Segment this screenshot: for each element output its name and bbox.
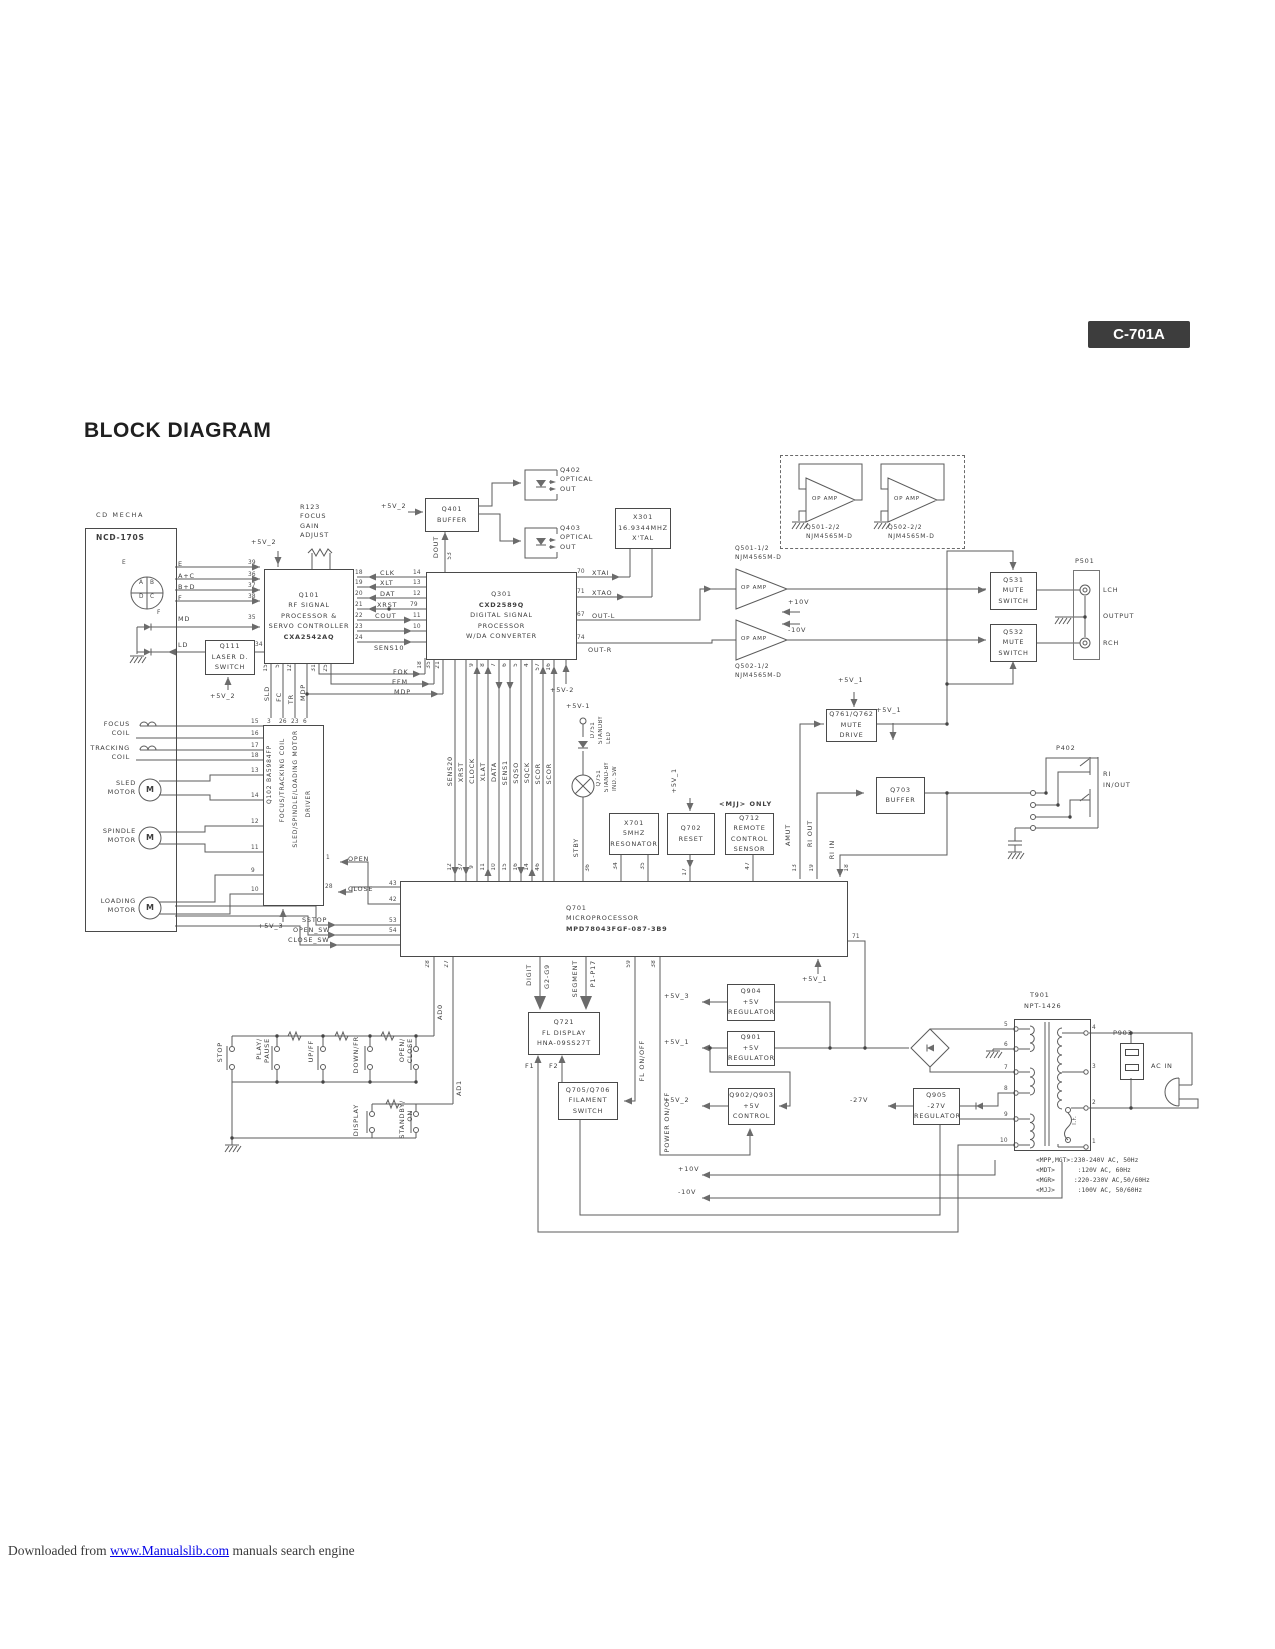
q901-out: +5V_1: [664, 1038, 689, 1046]
sig-sld: SLD: [263, 686, 271, 701]
pd-quadrant-c: C: [150, 594, 154, 600]
q905-out: -27V: [850, 1096, 868, 1104]
pd-quadrant-b: B: [150, 580, 154, 586]
q101-bpin5: 5: [275, 664, 281, 668]
ac-in-label: AC IN: [1151, 1062, 1173, 1070]
q301-pin53: 53: [447, 552, 453, 560]
button-play2: PAUSE: [263, 1038, 271, 1063]
q101-supply: +5V_2: [251, 538, 276, 546]
q301-bpin35: 35: [426, 661, 432, 669]
pin-34: 34: [255, 642, 263, 648]
t901-box: [1014, 1019, 1091, 1151]
sig-ac: A+C: [178, 572, 195, 580]
q301-bpin5: 5: [513, 663, 519, 667]
t901-pin1: 1: [1092, 1139, 1096, 1145]
q101-pin22: 22: [355, 613, 363, 619]
q301-bpin16: 16: [546, 663, 552, 671]
sig-ad0: AD0: [436, 1004, 444, 1020]
q751-ref: Q751: [596, 770, 602, 786]
q101-bpin15: 15: [263, 664, 269, 672]
q701-tpin36: 36: [585, 864, 591, 872]
mjj-note: <MJJ> ONLY: [719, 800, 772, 808]
footer-link[interactable]: www.Manualslib.com: [110, 1543, 229, 1558]
block-q705: Q705/Q706FILAMENTSWITCH: [558, 1082, 618, 1120]
bus-data: DATA: [490, 762, 498, 782]
pd-quadrant-d: D: [139, 594, 144, 600]
q101-bpin25: 25: [323, 664, 329, 672]
q301-pin13: 13: [413, 580, 421, 586]
q701-lpin43: 43: [389, 881, 397, 887]
q102-lpin9: 9: [251, 868, 255, 874]
sig-open: OPEN: [348, 855, 369, 863]
sig-mdp: MDP: [299, 684, 307, 701]
q904-out: +5V_3: [664, 992, 689, 1000]
q102-pin28: 28: [325, 884, 333, 890]
sig-close: CLOSE: [348, 885, 373, 893]
button-open1: OPEN/: [398, 1038, 406, 1062]
q301-bpin4: 4: [524, 663, 530, 667]
sig-xrst: XRST: [377, 601, 397, 609]
q301-pin11: 11: [413, 613, 421, 619]
q101-pin21: 21: [355, 602, 363, 608]
block-q721: Q721FL DISPLAYHNA-09SS27T: [528, 1012, 600, 1055]
r123-label: R123FOCUSGAINADJUST: [300, 503, 329, 541]
button-standby1: STANDBY/: [398, 1100, 406, 1139]
pin-36: 36: [248, 572, 256, 578]
opamp-m10: -10V: [788, 626, 806, 634]
q101-pin23: 23: [355, 624, 363, 630]
q701-bpin28: 28: [425, 960, 431, 968]
q301-bpin7: 7: [491, 663, 497, 667]
q111-supply: +5V_2: [210, 692, 235, 700]
sig-flonoff: FL ON/OFF: [638, 1040, 646, 1081]
sig-opensw: OPEN_SW: [293, 926, 330, 934]
q703-supply: +5V_1: [876, 706, 901, 714]
focus-coil-label: FOCUSCOIL: [86, 720, 130, 739]
sig-xtao: XTAO: [592, 589, 612, 597]
p903-fuse1: [1125, 1049, 1139, 1056]
q102-pin23: 23: [291, 719, 299, 725]
sig-ld: LD: [178, 641, 188, 649]
q701-tpin17: 17: [682, 868, 688, 876]
sig-bd: B+D: [178, 583, 195, 591]
sig-riin: RI IN: [828, 840, 836, 859]
q701-lpin42: 42: [389, 897, 397, 903]
opamp4-label: OP AMP: [894, 496, 920, 502]
model-badge: C-701A: [1088, 321, 1190, 348]
q102-col2: FOCUS/TRACKING COIL: [279, 738, 286, 822]
t901-pin4: 4: [1092, 1025, 1096, 1031]
q301-pin10: 10: [413, 624, 421, 630]
bus-sens1: SENS1: [501, 760, 509, 785]
sig-fc: FC: [275, 692, 283, 702]
q102-col3: SLED/SPINDLE/LOADING MOTOR: [292, 730, 299, 848]
sled-motor-label: SLEDMOTOR: [96, 779, 136, 798]
q701-supply: +5V_1: [802, 975, 827, 983]
rail-m10: -10V: [678, 1188, 696, 1196]
q102-pin26: 26: [279, 719, 287, 725]
block-q712: Q712REMOTECONTROLSENSOR: [725, 813, 774, 855]
p501-lch: LCH: [1103, 586, 1118, 594]
sig-xlt: XLT: [380, 579, 394, 587]
q102-lpin13: 13: [251, 768, 259, 774]
q101-pin20: 20: [355, 591, 363, 597]
bus-xlat: XLAT: [479, 762, 487, 781]
q301-bpin6: 6: [502, 663, 508, 667]
block-q301: Q301CXD2589QDIGITAL SIGNALPROCESSORW/DA …: [426, 572, 577, 660]
pin-39: 39: [248, 560, 256, 566]
block-x701: X7015MHZRESONATOR: [609, 813, 659, 855]
sig-sens10: SENS10: [374, 644, 404, 652]
bus-sqso: SQSO: [512, 762, 520, 784]
q501-2-label: Q501-2/2NJM4565M-D: [806, 524, 853, 541]
block-q905: Q905-27VREGULATOR: [913, 1088, 960, 1125]
q403-label: Q403OPTICALOUT: [560, 524, 593, 552]
footer: Downloaded from www.Manualslib.com manua…: [8, 1543, 355, 1559]
q701-bpin27: 27: [444, 960, 450, 968]
pd-quadrant-a: A: [139, 580, 143, 586]
q102-lpin16: 16: [251, 731, 259, 737]
t901-pin5: 5: [1004, 1022, 1008, 1028]
sig-stby: STBY: [572, 838, 580, 857]
t901-pin10: 10: [1000, 1138, 1008, 1144]
sig-dout: DOUT: [432, 536, 440, 558]
sig-riout: RI OUT: [806, 820, 814, 847]
p402-label: P402: [1056, 744, 1076, 752]
q702-supply: +5V_1: [670, 768, 678, 793]
q301-pin67: 67: [577, 612, 585, 618]
spindle-motor-label: SPINDLEMOTOR: [86, 827, 136, 846]
q301-bpin57: 57: [535, 663, 541, 671]
t901-pin8: 8: [1004, 1086, 1008, 1092]
q301-bpin8: 8: [480, 663, 486, 667]
sig-mdp2: MDP: [394, 688, 411, 696]
d751-label2: LED: [606, 732, 612, 744]
rail-p10: +10V: [678, 1165, 699, 1173]
sig-xtai: XTAI: [592, 569, 609, 577]
t901-pin2: 2: [1092, 1100, 1096, 1106]
t901-pin9: 9: [1004, 1112, 1008, 1118]
q301-pin70: 70: [577, 569, 585, 575]
loading-motor-symbol: M: [146, 903, 155, 912]
button-downfr: DOWN/FR: [352, 1036, 360, 1073]
t901-pin6: 6: [1004, 1042, 1008, 1048]
opamp1-label: OP AMP: [741, 585, 767, 591]
q102-pin3: 3: [267, 719, 271, 725]
q102-supply: +5V_3: [258, 922, 283, 930]
q102-col4: DRIVER: [305, 790, 312, 817]
button-stop: STOP: [216, 1042, 224, 1062]
button-display: DISPLAY: [352, 1104, 360, 1136]
sig-f1: F1: [525, 1062, 534, 1070]
footer-prefix: Downloaded from: [8, 1543, 110, 1558]
p501-rch: RCH: [1103, 639, 1119, 647]
block-q111: Q111LASER D.SWITCH: [205, 640, 255, 675]
opamp3-label: OP AMP: [812, 496, 838, 502]
mecha-model: NCD-170S: [96, 533, 145, 542]
button-play1: PLAY/: [255, 1038, 263, 1060]
loading-motor-label: LOADINGMOTOR: [86, 897, 136, 916]
d751-label1: STANDBY: [598, 716, 604, 744]
mecha-heading: CD MECHA: [96, 511, 144, 519]
t901-name: T901: [1030, 991, 1050, 999]
sig-dat: DAT: [380, 590, 395, 598]
opamp-p10: +10V: [788, 598, 809, 606]
q701-tpin13: 13: [792, 864, 798, 872]
q102-lpin17: 17: [251, 743, 259, 749]
bus-sqck: SQCK: [523, 762, 531, 783]
q301-pin79: 79: [410, 602, 418, 608]
t901-pin7: 7: [1004, 1065, 1008, 1071]
sig-ad1: AD1: [455, 1080, 463, 1096]
footer-suffix: manuals search engine: [229, 1543, 355, 1558]
sig-md: MD: [178, 615, 190, 623]
q701-tpin16: 16: [513, 863, 519, 871]
q751-label1: STAND-BY: [604, 762, 610, 792]
pd-f-label: F: [157, 610, 161, 616]
block-q531: Q531MUTESWITCH: [990, 572, 1037, 610]
bus-scor1: SCOR: [534, 763, 542, 785]
q301-pin14: 14: [413, 570, 421, 576]
q701-tpin34: 34: [613, 862, 619, 870]
tracking-coil-label: TRACKINGCOIL: [78, 744, 130, 763]
q102-col1: Q102 BA5984FP: [266, 745, 273, 804]
t901-pin3: 3: [1092, 1064, 1096, 1070]
button-upff: UP/FF: [307, 1040, 315, 1062]
block-q532: Q532MUTESWITCH: [990, 624, 1037, 662]
bus-sens20: SENS20: [446, 756, 454, 786]
q701-tpin19: 19: [809, 864, 815, 872]
button-open2: CLOSE: [406, 1038, 414, 1063]
q502-1-label: Q502-1/2NJM4565M-D: [735, 663, 782, 680]
q761-supply: +5V_1: [838, 676, 863, 684]
q751-label2: IND. SW: [612, 766, 618, 791]
p903-fuse2: [1125, 1064, 1139, 1071]
q701-lpin53: 53: [389, 918, 397, 924]
bus-scor2: SCOR: [545, 763, 553, 785]
q301-bpin21: 21: [435, 661, 441, 669]
sig-digit: DIGIT: [525, 964, 533, 986]
q101-pin18: 18: [355, 570, 363, 576]
block-q902: Q902/Q903+5VCONTROL: [728, 1088, 775, 1125]
q701-bpin59: 59: [626, 960, 632, 968]
q701-tpin35: 35: [640, 862, 646, 870]
pin-37: 37: [248, 583, 256, 589]
opamp2-label: OP AMP: [741, 636, 767, 642]
block-x301: X30116.9344MHZX'TAL: [615, 508, 671, 549]
q301-bpin18: 18: [417, 661, 423, 669]
block-q761: Q761/Q762MUTEDRIVE: [826, 709, 877, 742]
q701-bpin38: 38: [651, 960, 657, 968]
q701-tpin12: 12: [447, 863, 453, 871]
q102-lpin11: 11: [251, 845, 259, 851]
p501-connector: [1073, 570, 1100, 660]
pd-e-label: E: [122, 560, 126, 566]
p903-label: P903: [1113, 1029, 1133, 1037]
q701-tpin37: 37: [458, 863, 464, 871]
q701-tpin9: 9: [469, 865, 475, 869]
q101-bpin12: 12: [287, 664, 293, 672]
button-standby2: ON: [406, 1110, 414, 1122]
sig-f2: F2: [549, 1062, 558, 1070]
bus-xrst: XRST: [457, 762, 465, 782]
q102-lpin14: 14: [251, 793, 259, 799]
t901-tf: T.F.: [1072, 1116, 1078, 1126]
q102-pin1: 1: [326, 855, 330, 861]
q301-pin12: 12: [413, 591, 421, 597]
sled-motor-symbol: M: [146, 785, 155, 794]
sig-clk: CLK: [380, 569, 395, 577]
sig-sstop: SSTOP: [302, 916, 327, 924]
q101-pin19: 19: [355, 580, 363, 586]
standby-supply: +5V-1: [566, 702, 590, 710]
q502-2-label: Q502-2/2NJM4565M-D: [888, 524, 935, 541]
t901-model: NPT-1426: [1024, 1002, 1061, 1010]
q301-pin71: 71: [577, 589, 585, 595]
q701-tpin18: 18: [844, 864, 850, 872]
sig-e: E: [178, 560, 183, 568]
q701-tpin47: 47: [745, 862, 751, 870]
block-q904: Q904+5VREGULATOR: [727, 984, 775, 1021]
q701-tpin11: 11: [480, 863, 486, 871]
p501-output: OUTPUT: [1103, 612, 1134, 620]
q301-pin74: 74: [577, 635, 585, 641]
p501-label: P501: [1075, 557, 1095, 565]
p402-inout: IN/OUT: [1103, 781, 1131, 789]
block-q401: Q401BUFFER: [425, 498, 479, 532]
q101-bpin31: 31: [311, 664, 317, 672]
sig-p1p17: P1-P17: [589, 960, 597, 987]
sig-outl: OUT-L: [592, 612, 615, 620]
q701-rpin71: 71: [852, 934, 860, 940]
q402-label: Q402OPTICALOUT: [560, 466, 593, 494]
q902-out: +5V_2: [664, 1096, 689, 1104]
q701-tpin14: 14: [524, 863, 530, 871]
q501-1-label: Q501-1/2NJM4565M-D: [735, 545, 782, 562]
sig-closesw: CLOSE_SW: [288, 936, 329, 944]
sig-tr: TR: [287, 694, 295, 704]
d751-ref: D751: [590, 722, 596, 738]
q102-lpin10: 10: [251, 887, 259, 893]
pin-38: 38: [248, 594, 256, 600]
q102-lpin12: 12: [251, 819, 259, 825]
q701-tpin46: 46: [535, 863, 541, 871]
sig-cout: COUT: [375, 612, 397, 620]
sig-f: F: [178, 594, 183, 602]
sig-g2g9: G2-G9: [543, 964, 551, 989]
p402-ri: RI: [1103, 770, 1111, 778]
q102-pin6: 6: [303, 719, 307, 725]
schematic-page: C-701A BLOCK DIAGRAM CD MECHA NCD-170S E…: [0, 0, 1275, 1649]
sig-outr: OUT-R: [588, 646, 612, 654]
q701-tpin15: 15: [502, 863, 508, 871]
block-q702: Q702RESET: [667, 813, 715, 855]
mains-table: <MPP,MGT>:230-240V AC, 50Hz<MDT> :120V A…: [1036, 1156, 1150, 1196]
page-title: BLOCK DIAGRAM: [84, 419, 271, 443]
q301-bpin9: 9: [469, 663, 475, 667]
sig-efm: EFM: [392, 678, 408, 686]
sig-amut: AMUT: [784, 824, 792, 846]
spindle-motor-symbol: M: [146, 833, 155, 842]
q301-supply: +5V-2: [550, 686, 574, 694]
q101-pin24: 24: [355, 635, 363, 641]
sig-fok: FOK: [393, 668, 409, 676]
q701-lpin54: 54: [389, 928, 397, 934]
block-q701: Q701MICROPROCESSORMPD78043FGF-087-3B9: [400, 881, 848, 957]
q701-tpin10: 10: [491, 863, 497, 871]
q102-lpin15: 15: [251, 719, 259, 725]
bus-clock: CLOCK: [468, 758, 476, 784]
block-q901: Q901+5VREGULATOR: [727, 1031, 775, 1066]
q102-lpin18: 18: [251, 753, 259, 759]
pin-35: 35: [248, 615, 256, 621]
block-q703: Q703BUFFER: [876, 777, 925, 814]
q401-supply: +5V_2: [381, 502, 406, 510]
block-q101: Q101RF SIGNALPROCESSOR &SERVO CONTROLLER…: [264, 569, 354, 664]
sig-segment: SEGMENT: [571, 960, 579, 997]
